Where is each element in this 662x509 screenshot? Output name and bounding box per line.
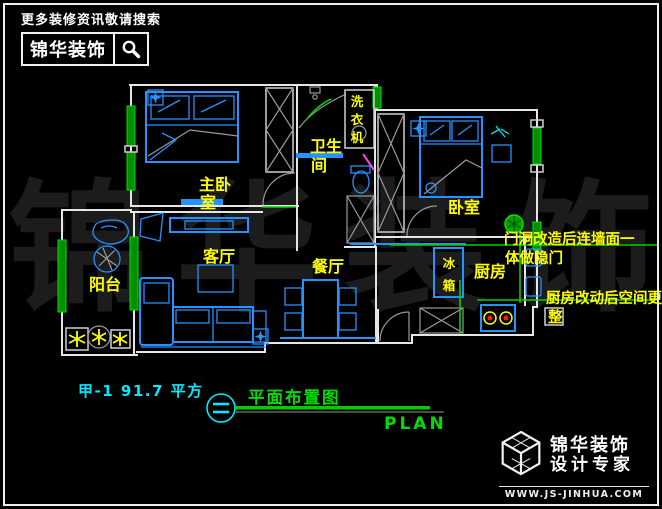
plan-title-en: PLAN bbox=[384, 414, 447, 434]
dining-room: 餐厅 bbox=[280, 244, 466, 338]
plant-pot-icon bbox=[88, 326, 110, 348]
title-block: 甲-1 91.7 平方 平面布置图 PLAN bbox=[78, 382, 447, 434]
balcony: 阳台 bbox=[66, 220, 130, 350]
plan-symbol bbox=[207, 394, 235, 422]
shower-curtain bbox=[299, 94, 346, 128]
tv-cabinet bbox=[170, 218, 248, 232]
decor bbox=[491, 126, 509, 137]
kitchen-annotation-line1: 厨房改动后空间更 bbox=[546, 289, 662, 307]
fridge-label-char: 箱 bbox=[443, 278, 456, 293]
bedroom-wardrobe bbox=[378, 114, 404, 232]
round-table bbox=[94, 246, 120, 272]
cube-logo-icon bbox=[499, 429, 543, 483]
washer-label-char: 洗 bbox=[351, 94, 364, 109]
door-annotation-line1: 门洞改造后连墙面一 bbox=[504, 230, 635, 248]
bed bbox=[420, 117, 482, 197]
room-label-dining: 餐厅 bbox=[311, 257, 344, 276]
header-brand: 锦华装饰 bbox=[23, 34, 115, 64]
sink bbox=[310, 87, 320, 93]
door-swing bbox=[407, 206, 437, 236]
footer-brand-block: 锦华装饰 设计专家 WWW.JS-JINHUA.COM bbox=[499, 429, 649, 500]
entry-door-swing bbox=[380, 312, 409, 341]
washer-label-char: 衣 bbox=[351, 112, 364, 127]
bath-cabinet bbox=[347, 196, 374, 243]
washer-label-char: 机 bbox=[351, 130, 364, 145]
footer-brand-tagline: 设计专家 bbox=[550, 456, 634, 476]
towel-bar bbox=[363, 154, 374, 170]
dining-chairs bbox=[285, 288, 356, 330]
footer-website: WWW.JS-JINHUA.COM bbox=[499, 486, 649, 500]
toilet bbox=[351, 166, 370, 193]
fridge-label-char: 冰 bbox=[443, 256, 456, 271]
window bbox=[533, 128, 541, 164]
nightstand bbox=[492, 145, 511, 162]
room-label-balcony: 阳台 bbox=[89, 275, 121, 294]
room-label-living: 客厅 bbox=[203, 247, 235, 266]
cad-floorplan-canvas: 锦华装饰 更多装修资讯敬请搜索 锦华装饰 bbox=[0, 0, 662, 509]
room-label-bathroom: 卫生 bbox=[310, 137, 342, 156]
room-label-bedroom: 卧室 bbox=[448, 198, 480, 217]
window bbox=[127, 152, 135, 190]
master-wardrobe bbox=[266, 88, 293, 172]
plant-box-icon bbox=[66, 328, 88, 350]
room-label-master-bedroom-2: 室 bbox=[200, 193, 216, 212]
room-label-bathroom-2: 间 bbox=[311, 156, 327, 175]
door-annotation-line2: 体做隐门 bbox=[505, 249, 563, 267]
footer-brand-name: 锦华装饰 bbox=[550, 436, 634, 456]
lounge-chair bbox=[93, 220, 128, 244]
room-label-master-bedroom: 主卧 bbox=[199, 175, 231, 194]
sofa bbox=[140, 278, 266, 347]
bedroom: 卧室 bbox=[378, 114, 523, 236]
header-tagline: 更多装修资讯敬请搜索 bbox=[21, 9, 161, 28]
dining-table bbox=[303, 280, 338, 338]
kitchen-annotation-line2: 整 bbox=[548, 308, 563, 326]
cabinet bbox=[526, 277, 541, 296]
door-swing bbox=[263, 173, 295, 205]
window bbox=[58, 240, 66, 312]
room-label-kitchen: 厨房 bbox=[474, 262, 506, 281]
search-icon bbox=[115, 34, 147, 64]
window bbox=[127, 106, 135, 146]
window bbox=[130, 237, 138, 310]
header-logo-box: 锦华装饰 bbox=[21, 32, 149, 66]
counter bbox=[420, 308, 463, 333]
master-bedroom: 主卧 室 bbox=[146, 88, 296, 212]
master-bed bbox=[146, 92, 238, 162]
plan-title: 平面布置图 bbox=[248, 387, 341, 407]
header: 更多装修资讯敬请搜索 锦华装饰 bbox=[21, 9, 161, 66]
bathroom: 洗 衣 机 卫生 间 bbox=[296, 87, 374, 243]
unit-area-label: 甲-1 91.7 平方 bbox=[78, 382, 204, 400]
stove bbox=[481, 305, 515, 331]
decor bbox=[140, 213, 163, 241]
living-room: 客厅 bbox=[140, 213, 268, 347]
plant-box-icon bbox=[111, 330, 130, 348]
coffee-table bbox=[198, 265, 233, 292]
